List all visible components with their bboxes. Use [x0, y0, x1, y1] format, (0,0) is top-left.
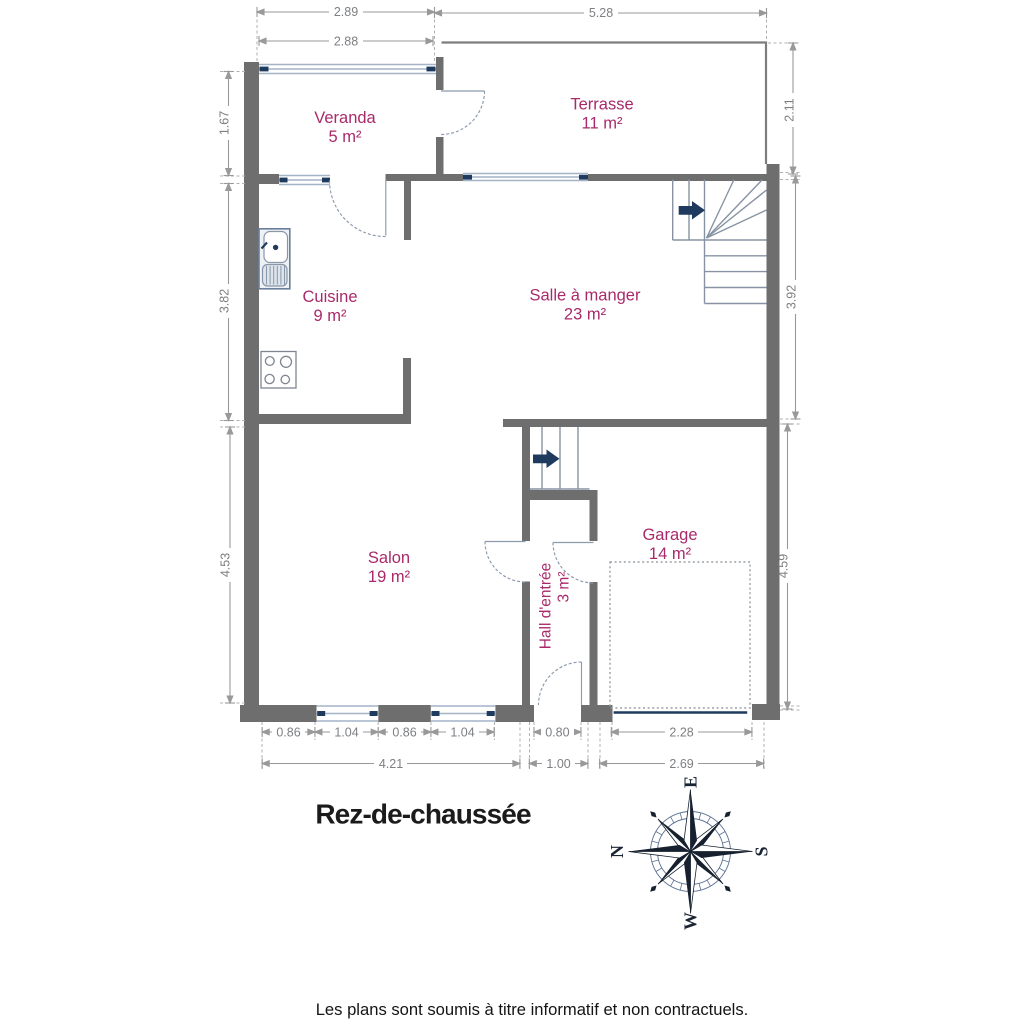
svg-text:S: S [752, 846, 772, 856]
svg-text:0.86: 0.86 [276, 726, 300, 740]
svg-text:5 m²: 5 m² [329, 128, 363, 146]
svg-text:4.59: 4.59 [777, 554, 791, 578]
svg-text:2.88: 2.88 [334, 35, 358, 49]
svg-text:9 m²: 9 m² [314, 307, 348, 325]
svg-text:Veranda: Veranda [314, 109, 376, 127]
svg-text:2.11: 2.11 [783, 98, 797, 121]
svg-text:2.69: 2.69 [669, 757, 693, 771]
svg-text:1.67: 1.67 [218, 111, 232, 135]
svg-text:3.92: 3.92 [785, 285, 799, 309]
svg-text:Cuisine: Cuisine [302, 288, 357, 306]
svg-text:Rez-de-chaussée: Rez-de-chaussée [315, 799, 531, 830]
svg-text:Les plans sont soumis à titre: Les plans sont soumis à titre informatif… [316, 1000, 749, 1019]
svg-text:3.82: 3.82 [218, 289, 232, 313]
svg-text:4.21: 4.21 [379, 757, 403, 771]
svg-text:14 m²: 14 m² [649, 545, 692, 563]
svg-text:N: N [607, 845, 627, 858]
svg-text:Hall d'entrée: Hall d'entrée [538, 563, 555, 650]
svg-text:2.28: 2.28 [669, 726, 693, 740]
svg-text:E: E [681, 776, 701, 788]
svg-text:5.28: 5.28 [589, 6, 613, 20]
svg-text:19 m²: 19 m² [368, 568, 411, 586]
svg-text:23 m²: 23 m² [564, 306, 607, 324]
svg-text:Garage: Garage [642, 526, 697, 544]
svg-text:1.04: 1.04 [450, 726, 474, 740]
svg-text:1.04: 1.04 [334, 726, 358, 740]
svg-text:2.89: 2.89 [334, 5, 358, 19]
svg-text:4.53: 4.53 [219, 553, 233, 577]
svg-text:11 m²: 11 m² [582, 115, 623, 133]
svg-text:Terrasse: Terrasse [570, 96, 633, 114]
svg-text:Salon: Salon [368, 549, 410, 567]
svg-text:3 m²: 3 m² [556, 572, 573, 603]
svg-text:0.80: 0.80 [545, 726, 569, 740]
svg-text:W: W [681, 912, 701, 930]
svg-text:0.86: 0.86 [392, 726, 416, 740]
svg-text:1.00: 1.00 [546, 757, 570, 771]
svg-text:Salle à manger: Salle à manger [530, 287, 641, 305]
